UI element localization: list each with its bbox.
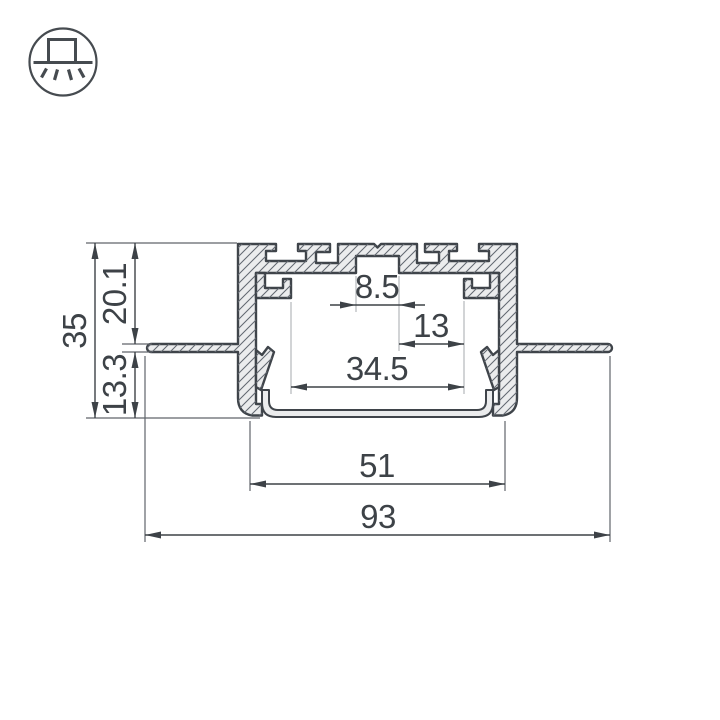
dimension-lines [92, 243, 611, 539]
label-overall-height: 35 [56, 313, 93, 349]
label-overall-width: 93 [360, 498, 396, 535]
technical-drawing-page: 35 20.1 13.3 8.5 13 34.5 51 93 [0, 0, 720, 720]
icon-profile-box [49, 40, 76, 63]
label-lower-height: 13.3 [96, 354, 133, 416]
bottom-tray [262, 390, 493, 417]
icon-light-rays [42, 69, 85, 81]
spring-barb-left-hatch [256, 347, 274, 390]
label-slot-width: 8.5 [355, 268, 399, 305]
label-upper-height: 20.1 [96, 263, 133, 325]
spring-barb-right-hatch [481, 347, 499, 390]
screw-hook-right-hatch [464, 273, 499, 298]
label-slot-offset: 13 [413, 307, 449, 344]
label-body-width: 51 [359, 447, 395, 484]
screw-hook-left-hatch [256, 273, 291, 298]
recessed-profile-downlight-icon [30, 29, 97, 96]
profile-drawing-canvas: 35 20.1 13.3 8.5 13 34.5 51 93 [0, 0, 720, 720]
extension-lines [86, 243, 610, 542]
label-inner-width: 34.5 [346, 350, 408, 387]
